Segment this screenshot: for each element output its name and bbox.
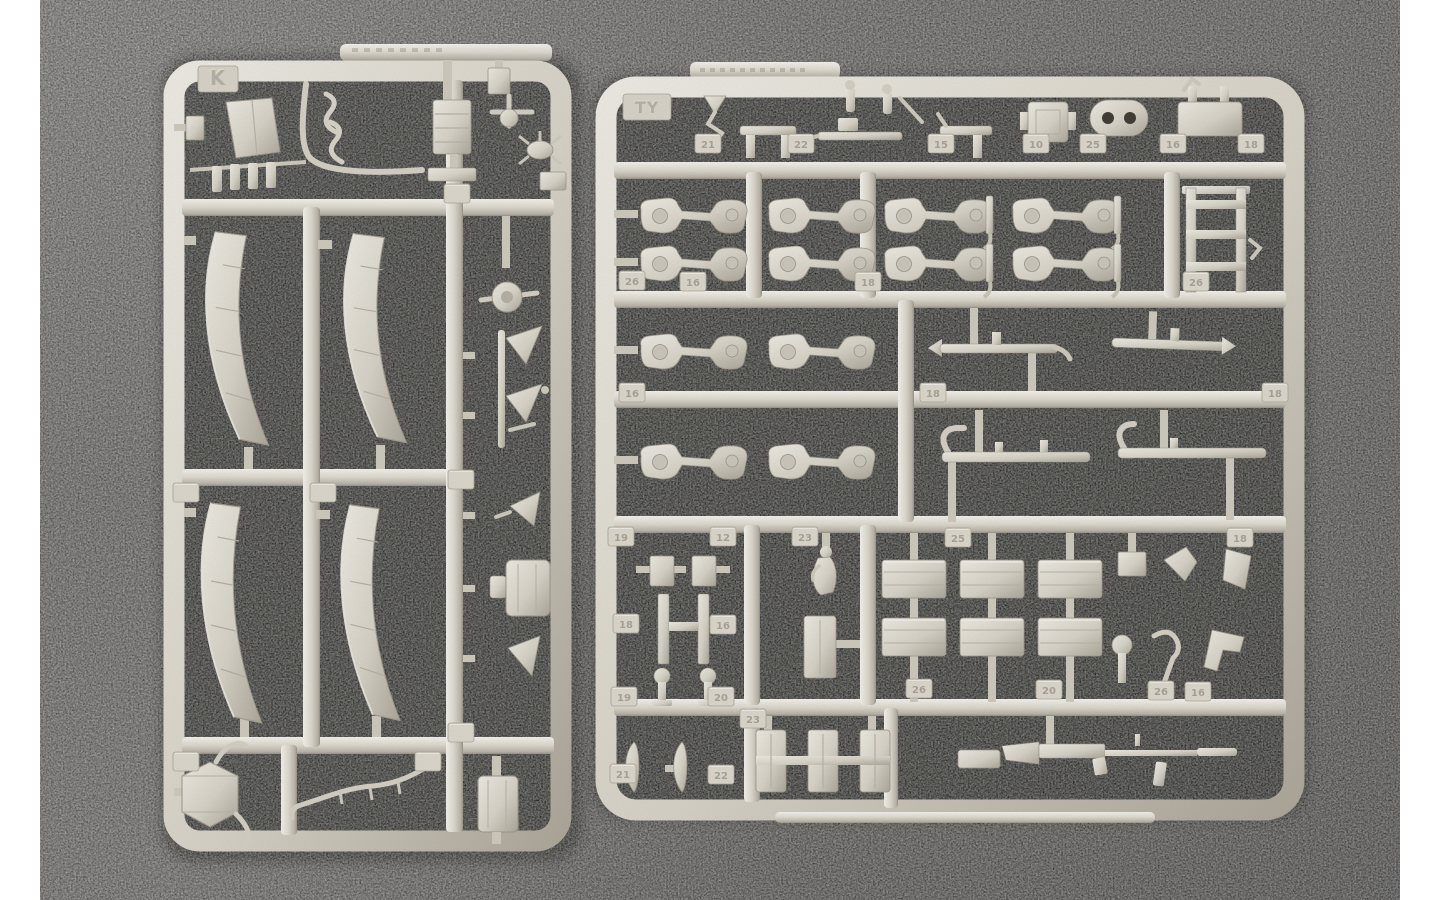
photo-grain-overlay: [40, 0, 1400, 900]
photo-page: K K: [0, 0, 1440, 900]
sprue-photo: K K: [40, 0, 1400, 900]
